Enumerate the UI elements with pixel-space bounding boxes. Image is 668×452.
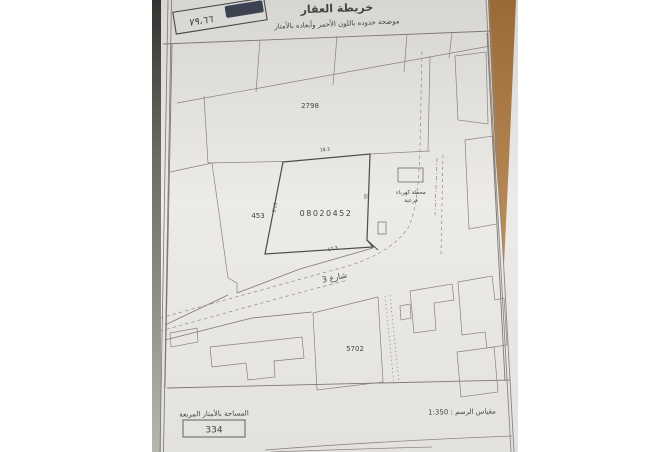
parcel-08020452-boundary — [265, 154, 373, 254]
substation-boundary-dashdot — [435, 158, 437, 215]
parcel-5702-label: 5702 — [346, 345, 364, 353]
document-subtitle: موضحة حدوده باللون الأحمر وأبعاده بالأمت… — [273, 16, 400, 31]
paper-left-shadow-edge — [152, 0, 161, 452]
buildings-southeast — [400, 276, 507, 397]
document-number-stamp: رقم الوثيقة ٧٩،٦٦ — [173, 0, 267, 34]
area-label: المساحة بالأمتار المربعة — [179, 408, 249, 418]
street-dashed-lines — [160, 48, 422, 331]
paper-left-fold-lines — [160, 0, 172, 452]
stamp-handwritten-number: ٧٩،٦٦ — [188, 14, 215, 29]
buildings-southwest — [170, 328, 304, 380]
substation-label-line1: محطة كهرباء — [396, 189, 426, 196]
area-value: 334 — [205, 426, 222, 436]
dimension-left: 17.3 — [270, 202, 278, 213]
parcel-08020452-label: 08020452 — [300, 209, 353, 218]
corner-structure — [378, 222, 386, 234]
dimension-bottom: 17.3 — [327, 245, 338, 253]
side-road-dotted — [385, 295, 399, 384]
right-dashed-divider — [441, 155, 443, 255]
document-title: خريطة العقار — [299, 1, 373, 17]
parcel-453-label: 453 — [251, 212, 264, 220]
scale-label: مقياس الرسم : 1:350 — [428, 407, 496, 416]
parcel-2798-label: 2798 — [301, 102, 319, 110]
document-photo: خريطة العقار موضحة حدوده باللون الأحمر و… — [152, 0, 518, 452]
screenshot: خريطة العقار موضحة حدوده باللون الأحمر و… — [0, 0, 668, 452]
cadastral-map-svg: خريطة العقار موضحة حدوده باللون الأحمر و… — [152, 0, 518, 452]
parcel-453-boundary — [212, 163, 237, 293]
street-edges — [165, 248, 373, 340]
parcel-5702-boundary — [313, 297, 383, 390]
paper-bottom-curl — [265, 436, 512, 452]
dimension-top: 18.3 — [320, 147, 331, 154]
dimension-right: 35 — [362, 193, 368, 199]
